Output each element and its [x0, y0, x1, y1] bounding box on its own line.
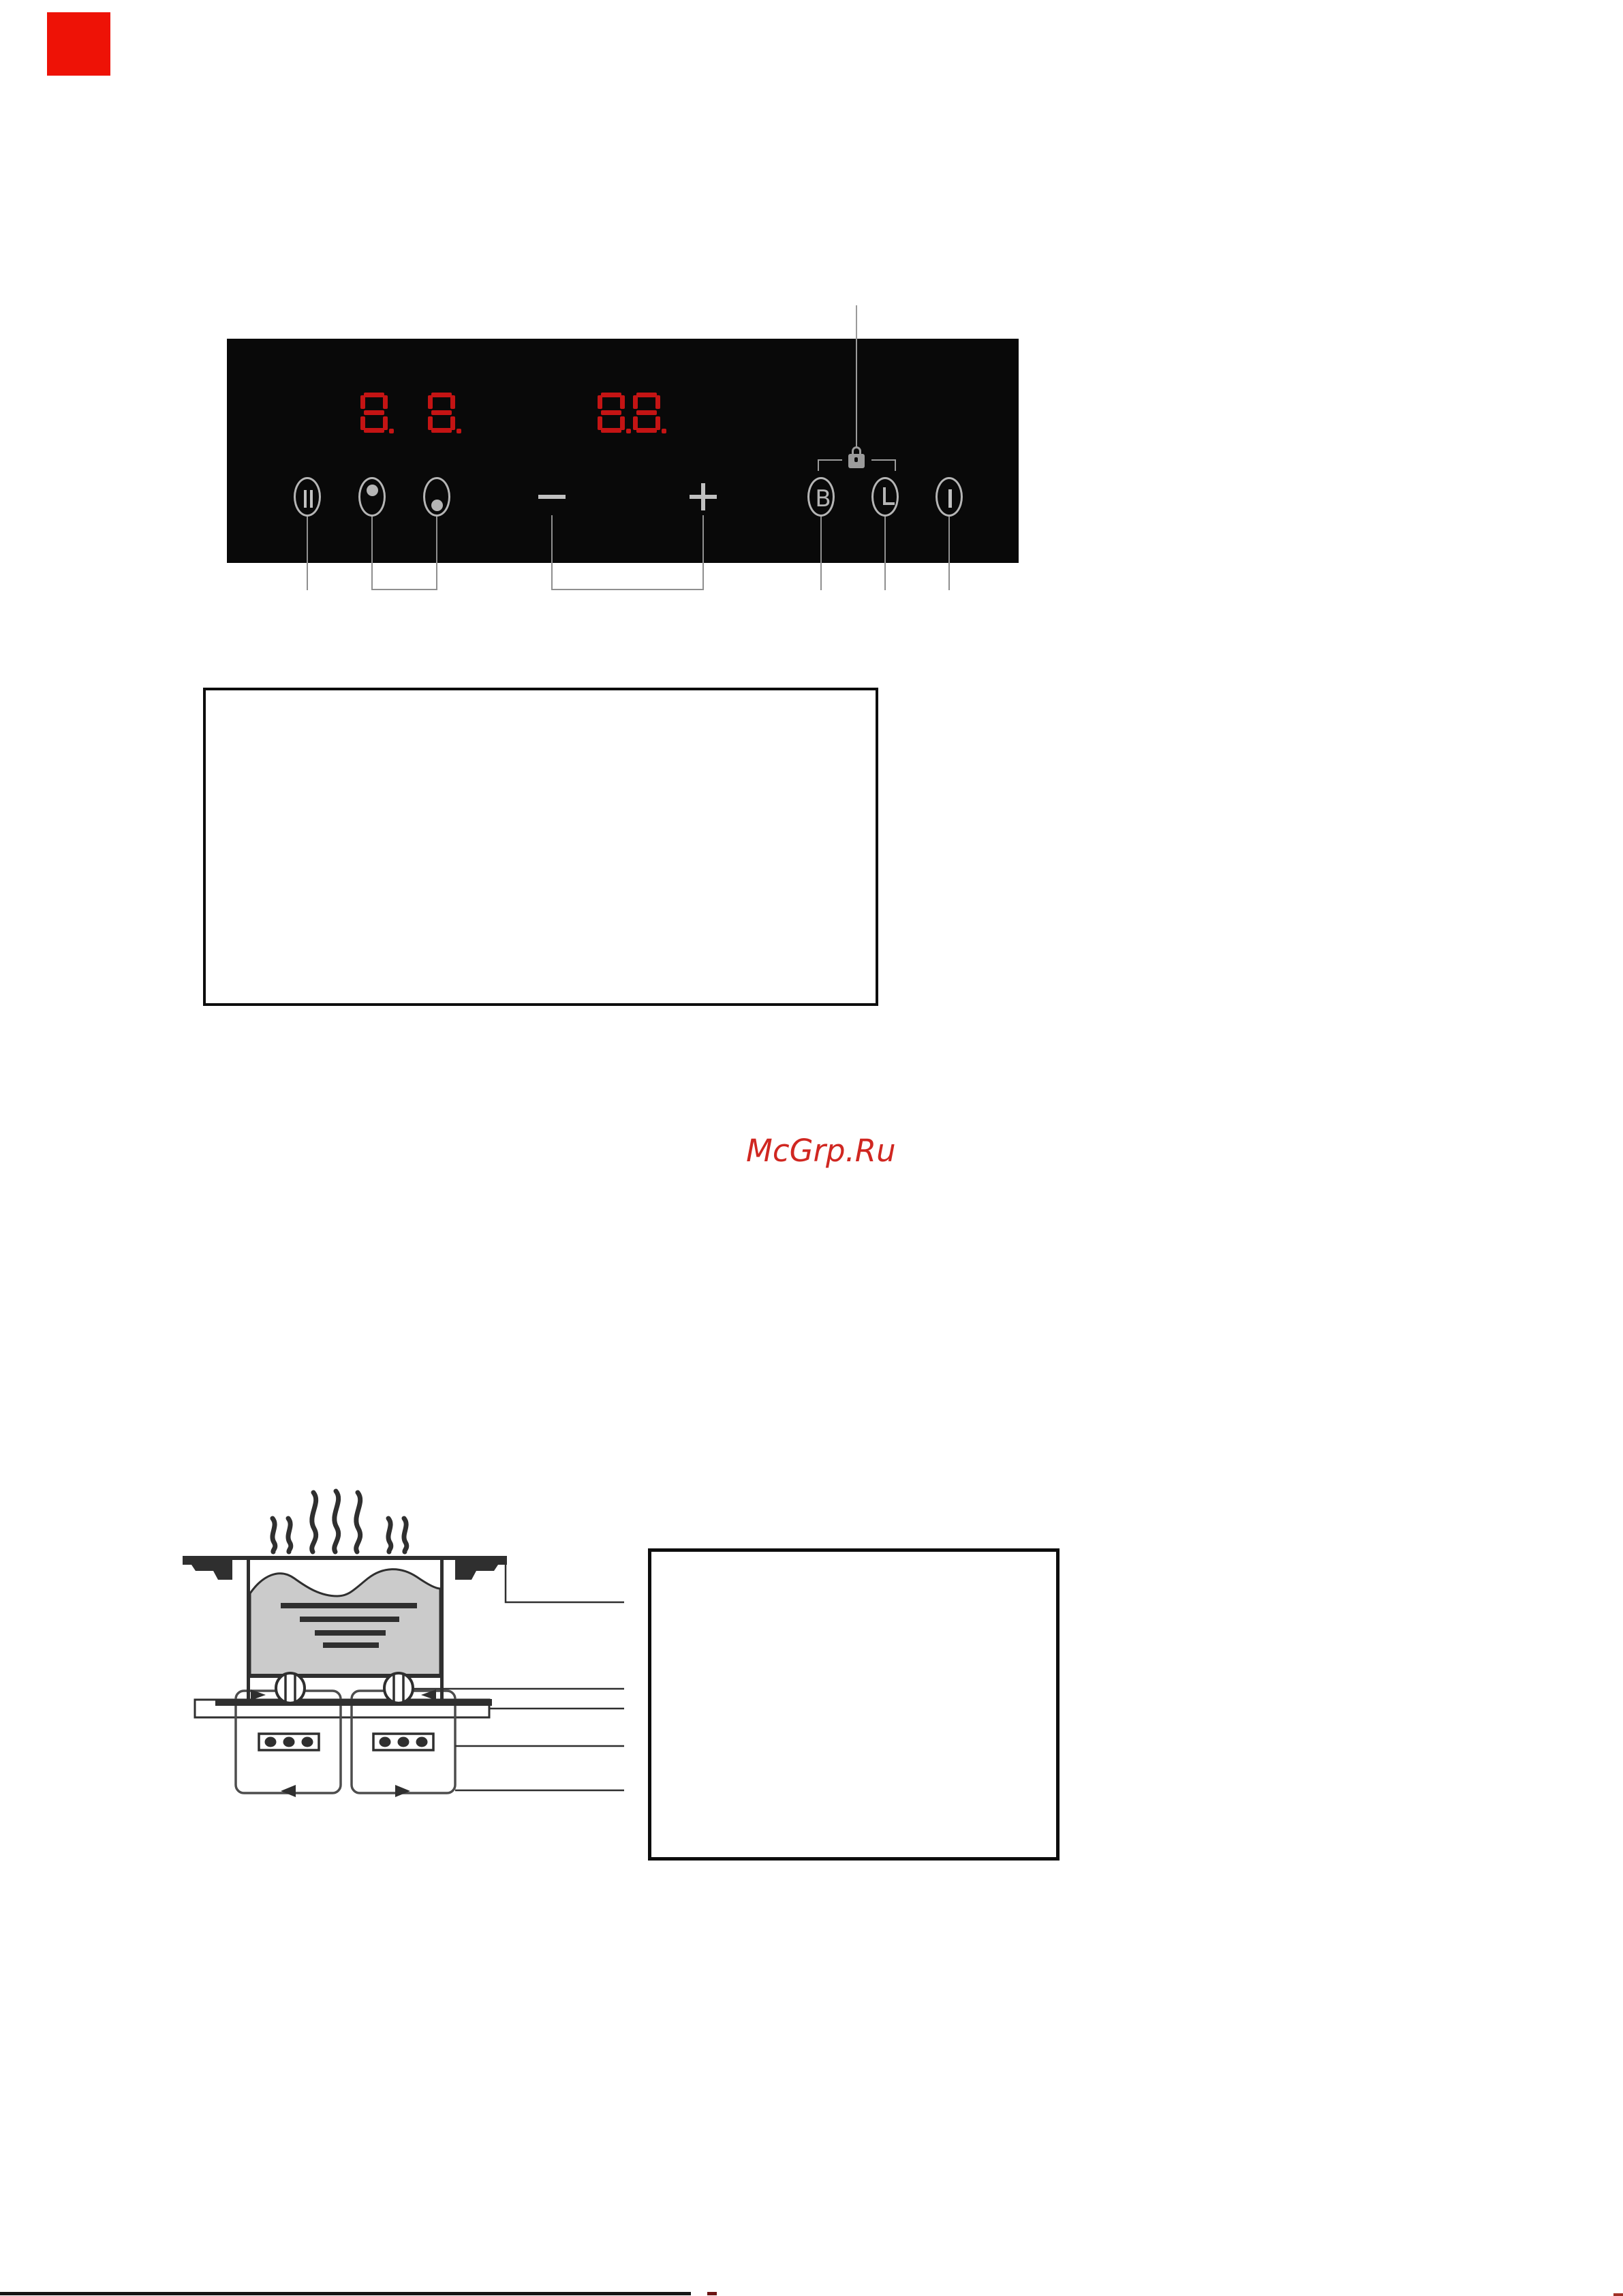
plus-callout-line — [702, 515, 704, 590]
booster-key[interactable]: B — [807, 477, 835, 517]
zone-callout-line-1 — [371, 517, 373, 590]
induction-diagram — [170, 1465, 647, 1847]
minus-icon — [538, 495, 566, 499]
minus-key[interactable] — [538, 483, 566, 510]
timer-display-digit-2 — [633, 393, 660, 433]
pause-callout-line — [307, 517, 308, 590]
terminal-dots — [265, 1737, 428, 1747]
notes-box-2 — [648, 1548, 1060, 1861]
pause-icon — [304, 490, 307, 508]
hob-surface-line — [215, 1699, 492, 1706]
control-panel: B — [227, 339, 1019, 563]
zone-front-dot-icon — [367, 485, 378, 496]
booster-label: B — [809, 479, 837, 519]
footer-dash — [707, 2292, 717, 2295]
footer-rule — [0, 2292, 691, 2295]
boiling-liquid — [250, 1570, 440, 1677]
power-callout-line — [948, 517, 950, 590]
zone-display-digit-1 — [360, 393, 388, 433]
booster-callout-line — [820, 517, 822, 590]
timer-display-digit-1 — [598, 393, 625, 433]
power-key[interactable] — [936, 477, 963, 517]
zone-callout-line-2 — [436, 517, 437, 590]
diagram-callout-lines — [414, 1561, 624, 1790]
timer-callout-line — [884, 517, 886, 590]
pot-wall-left — [247, 1556, 250, 1706]
pause-key[interactable] — [294, 477, 321, 517]
zone-rear-dot-icon — [431, 500, 443, 511]
power-icon — [948, 489, 952, 508]
footer-corner-dash — [1613, 2293, 1623, 2296]
watermark: McGrp.Ru — [746, 1133, 896, 1169]
zone-select-rear-key[interactable] — [423, 477, 450, 517]
lock-callout-line — [856, 305, 857, 447]
manual-page: B McGrp.Ru — [0, 0, 1623, 2296]
zone-display-digit-2 — [428, 393, 455, 433]
minus-plus-callout-bracket — [551, 589, 704, 590]
pot-wall-right — [440, 1556, 444, 1706]
notes-box-1 — [203, 688, 878, 1006]
zone-select-front-key[interactable] — [358, 477, 386, 517]
lock-bracket — [818, 459, 819, 471]
minus-callout-line — [551, 515, 553, 590]
worktop-edge — [183, 1556, 507, 1580]
timer-key[interactable] — [871, 477, 899, 517]
zone-callout-bracket — [371, 589, 437, 590]
steam-icon — [273, 1491, 407, 1552]
page-corner-marker — [47, 12, 110, 76]
